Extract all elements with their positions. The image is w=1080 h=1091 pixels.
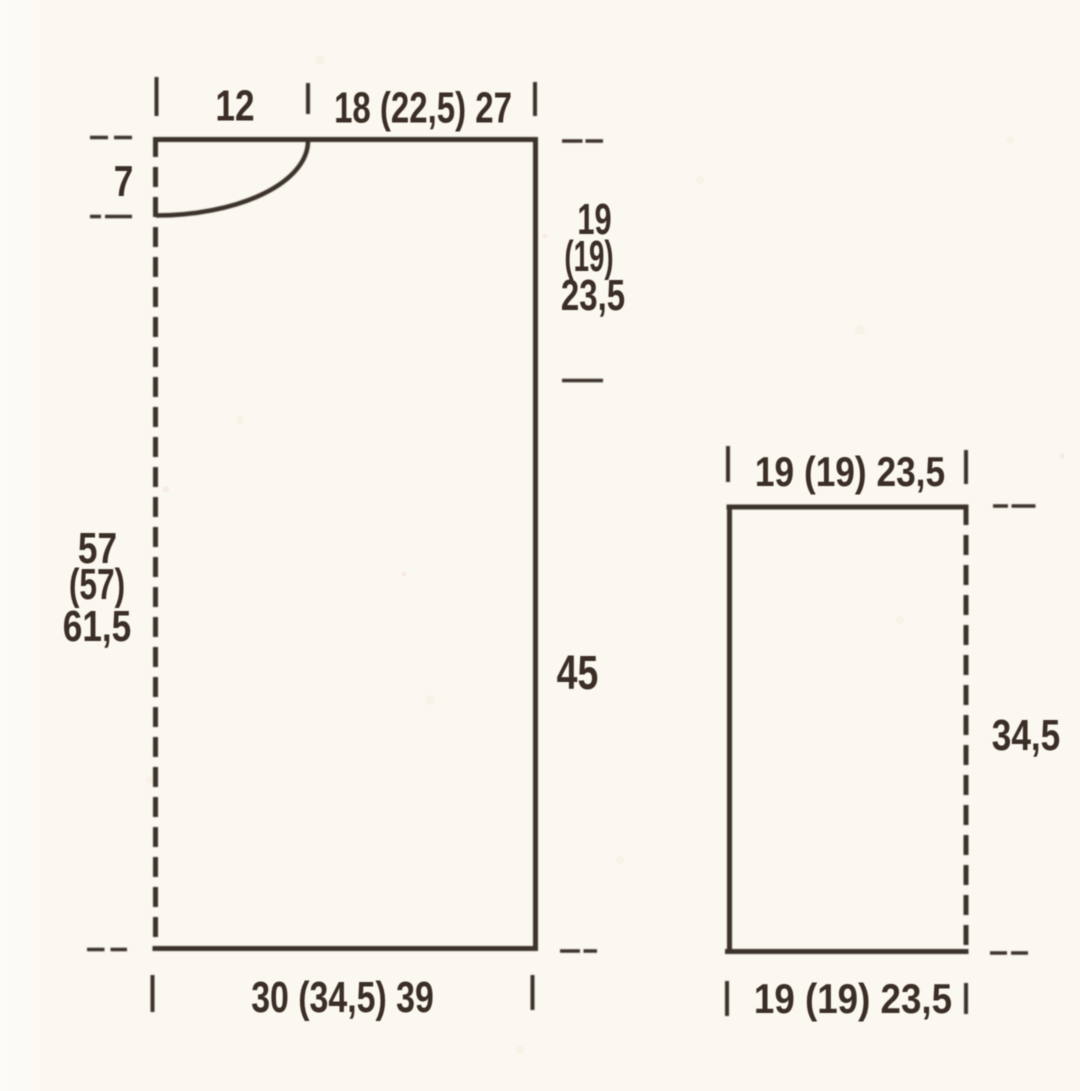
svg-text:18 (22,5) 27: 18 (22,5) 27 — [334, 84, 512, 133]
svg-text:23,5: 23,5 — [561, 272, 625, 321]
svg-text:34,5: 34,5 — [992, 711, 1060, 760]
svg-text:7: 7 — [114, 157, 134, 206]
svg-text:19 (19) 23,5: 19 (19) 23,5 — [755, 449, 945, 496]
svg-text:12: 12 — [215, 82, 254, 131]
svg-text:45: 45 — [557, 647, 599, 701]
svg-text:19 (19) 23,5: 19 (19) 23,5 — [754, 976, 952, 1023]
svg-text:61,5: 61,5 — [63, 602, 131, 651]
svg-text:30 (34,5) 39: 30 (34,5) 39 — [251, 973, 434, 1022]
